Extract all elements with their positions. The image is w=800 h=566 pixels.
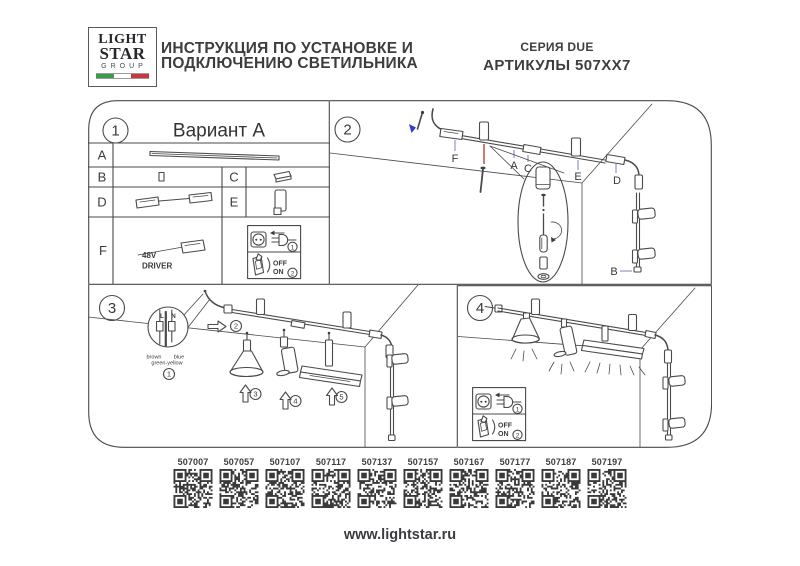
panel-4-canvas: 4 bbox=[458, 285, 712, 448]
spot-lamp-cylinder bbox=[387, 395, 408, 409]
qr-item: 507107 bbox=[266, 457, 305, 508]
spot-lamp-cylinder bbox=[276, 329, 298, 377]
wire-green-yellow-label: green-yellow bbox=[151, 361, 182, 367]
linear-lamp bbox=[300, 332, 363, 387]
step-1-number: 1 bbox=[167, 370, 171, 379]
track-end-cap bbox=[389, 435, 396, 441]
track-assembly bbox=[440, 122, 605, 163]
qr-code bbox=[542, 469, 581, 508]
part-a-track-bar bbox=[150, 152, 279, 161]
step-2-number: 2 bbox=[234, 322, 238, 331]
part-b-clip bbox=[159, 173, 164, 182]
panel-4-number: 4 bbox=[476, 300, 484, 317]
light-rays bbox=[549, 362, 574, 374]
panel-2-number: 2 bbox=[343, 122, 351, 139]
spot-lamp-cylinder bbox=[387, 353, 408, 367]
spot-lamp-cone bbox=[511, 313, 539, 361]
track-end-cap bbox=[634, 267, 641, 272]
instruction-sheet: 1 OFF ON 2 LIGHT STAR GROUP ИНСТРУКЦИЯ П… bbox=[0, 0, 800, 566]
qr-code bbox=[220, 469, 259, 508]
qr-article-label: 507197 bbox=[588, 457, 627, 467]
label-f: F bbox=[452, 153, 459, 165]
label-e: E bbox=[574, 171, 581, 183]
qr-code bbox=[266, 469, 305, 508]
qr-item: 507187 bbox=[542, 457, 581, 508]
step-4-number: 4 bbox=[293, 397, 297, 406]
row-f-label: F bbox=[99, 243, 107, 258]
row-d-label: D bbox=[97, 195, 106, 210]
spot-lamp-cylinder bbox=[633, 248, 656, 263]
blue-arrow-icon bbox=[409, 124, 416, 133]
qr-code bbox=[496, 469, 535, 508]
row-a-label: A bbox=[98, 148, 107, 163]
panel-2-canvas: 2 bbox=[330, 100, 712, 285]
qr-code bbox=[174, 469, 213, 508]
up-arrow-icon bbox=[240, 385, 251, 402]
spot-lamp-cone bbox=[230, 332, 263, 377]
wall-track-assembly bbox=[606, 155, 656, 273]
qr-code bbox=[450, 469, 489, 508]
qr-article-label: 507137 bbox=[358, 457, 397, 467]
qr-article-label: 507107 bbox=[266, 457, 305, 467]
label-b: B bbox=[610, 266, 617, 278]
italian-flag-stripe bbox=[96, 73, 149, 79]
qr-code bbox=[312, 469, 351, 508]
qr-article-label: 507177 bbox=[496, 457, 535, 467]
track-assembly bbox=[204, 290, 373, 335]
light-rays bbox=[585, 362, 645, 375]
series-info: СЕРИЯ DUE АРТИКУЛЫ 507XX7 bbox=[450, 40, 664, 74]
label-d: D bbox=[613, 175, 621, 187]
qr-item: 507177 bbox=[496, 457, 535, 508]
qr-item: 507197 bbox=[588, 457, 627, 508]
driver-voltage-label: 48V bbox=[142, 251, 157, 260]
qr-article-label: 507007 bbox=[174, 457, 213, 467]
wall-track-assembly bbox=[369, 330, 408, 441]
spot-lamp-cylinder bbox=[663, 417, 685, 431]
spot-lamp-cylinder bbox=[663, 375, 685, 389]
panel-1-parts-list: 1 Вариант А A B C D E F bbox=[88, 100, 330, 285]
step-5-number: 5 bbox=[339, 393, 343, 402]
website-url: www.lightstar.ru bbox=[0, 527, 800, 543]
part-e-cylinder bbox=[274, 190, 286, 215]
qr-item: 507167 bbox=[450, 457, 489, 508]
document-title: ИНСТРУКЦИЯ ПО УСТАНОВКЕ И ПОДКЛЮЧЕНИЮ СВ… bbox=[161, 42, 451, 72]
lightstar-logo: LIGHT STAR GROUP bbox=[88, 27, 157, 87]
label-a: A bbox=[510, 160, 518, 172]
row-b-label: B bbox=[98, 170, 107, 185]
qr-code bbox=[404, 469, 443, 508]
driver-label: DRIVER bbox=[142, 262, 172, 271]
track-end-cap bbox=[666, 435, 673, 440]
qr-item: 507007 bbox=[174, 457, 213, 508]
step-3-number: 3 bbox=[253, 390, 257, 399]
part-d-connector-cord bbox=[136, 193, 212, 209]
logo-star: STAR bbox=[89, 46, 156, 61]
qr-article-label: 507117 bbox=[312, 457, 351, 467]
panel-3-canvas: 3 L N brown blue gree bbox=[88, 285, 458, 448]
row-e-label: E bbox=[230, 195, 239, 210]
ceiling-wall-outline bbox=[330, 104, 652, 284]
qr-article-label: 507157 bbox=[404, 457, 443, 467]
spot-lamp-cylinder bbox=[633, 208, 656, 223]
up-arrow-icon bbox=[280, 392, 291, 409]
qr-item: 507117 bbox=[312, 457, 351, 508]
rotate-arrow-icon bbox=[551, 222, 562, 239]
series-name: СЕРИЯ DUE bbox=[450, 40, 664, 54]
supply-cable bbox=[432, 109, 445, 131]
panel-3-wiring: 3 L N brown blue gree bbox=[88, 285, 458, 448]
panel-2-mounting: 2 bbox=[330, 100, 712, 285]
variant-a-title: Вариант А bbox=[173, 121, 265, 142]
spot-lamp-cylinder bbox=[549, 319, 577, 374]
part-c-bracket bbox=[274, 172, 291, 183]
panel-1-number: 1 bbox=[111, 123, 119, 140]
wall-track-assembly bbox=[645, 331, 685, 441]
qr-article-label: 507187 bbox=[542, 457, 581, 467]
part-f-driver: 48V DRIVER bbox=[138, 240, 205, 271]
qr-item: 507157 bbox=[404, 457, 443, 508]
qr-code bbox=[588, 469, 627, 508]
screw-icon bbox=[409, 111, 424, 133]
qr-item: 507137 bbox=[358, 457, 397, 508]
panel-3-number: 3 bbox=[108, 300, 116, 317]
qr-article-label: 507167 bbox=[450, 457, 489, 467]
articles-code: АРТИКУЛЫ 507XX7 bbox=[450, 57, 664, 74]
qr-code-row: 507007 507057 507107 507117 507137 50715… bbox=[174, 457, 627, 508]
title-line2: ПОДКЛЮЧЕНИЮ СВЕТИЛЬНИКА bbox=[161, 57, 451, 72]
panel-4-finished: 4 bbox=[458, 285, 712, 448]
qr-code bbox=[358, 469, 397, 508]
wire-l-label: L bbox=[160, 314, 164, 320]
panel-1-canvas: 1 Вариант А A B C D E F bbox=[88, 100, 330, 285]
ceiling-screw bbox=[480, 167, 485, 192]
light-rays bbox=[511, 349, 537, 361]
qr-item: 507057 bbox=[220, 457, 259, 508]
row-c-label: C bbox=[229, 170, 238, 185]
qr-article-label: 507057 bbox=[220, 457, 259, 467]
wiring-detail-circle: L N brown blue green-yellow 1 bbox=[147, 294, 210, 380]
logo-group: GROUP bbox=[89, 63, 156, 71]
